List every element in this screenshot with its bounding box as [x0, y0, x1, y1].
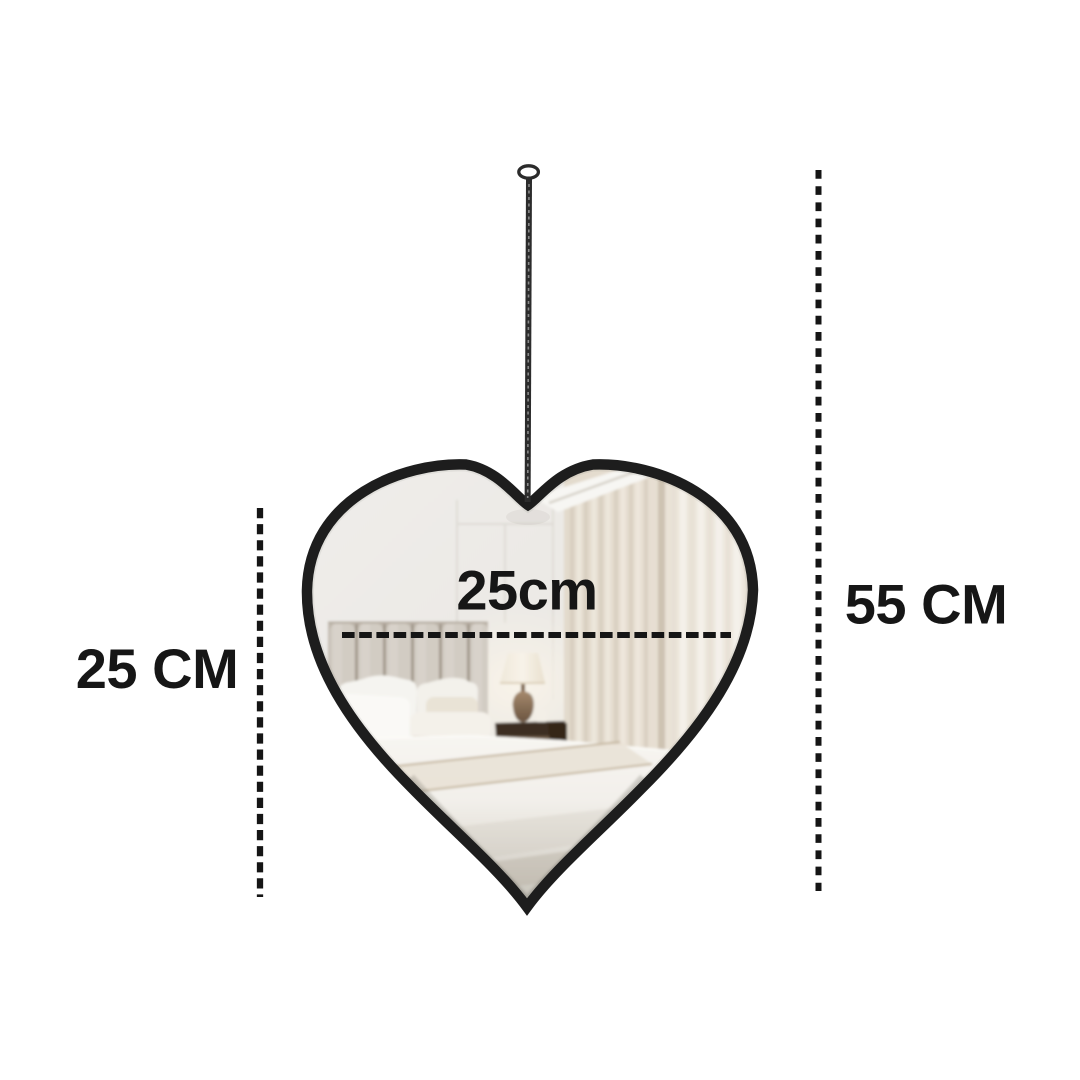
svg-text:55 CM: 55 CM: [845, 573, 1007, 636]
svg-text:25 CM: 25 CM: [76, 637, 238, 700]
svg-text:25cm: 25cm: [456, 559, 597, 622]
